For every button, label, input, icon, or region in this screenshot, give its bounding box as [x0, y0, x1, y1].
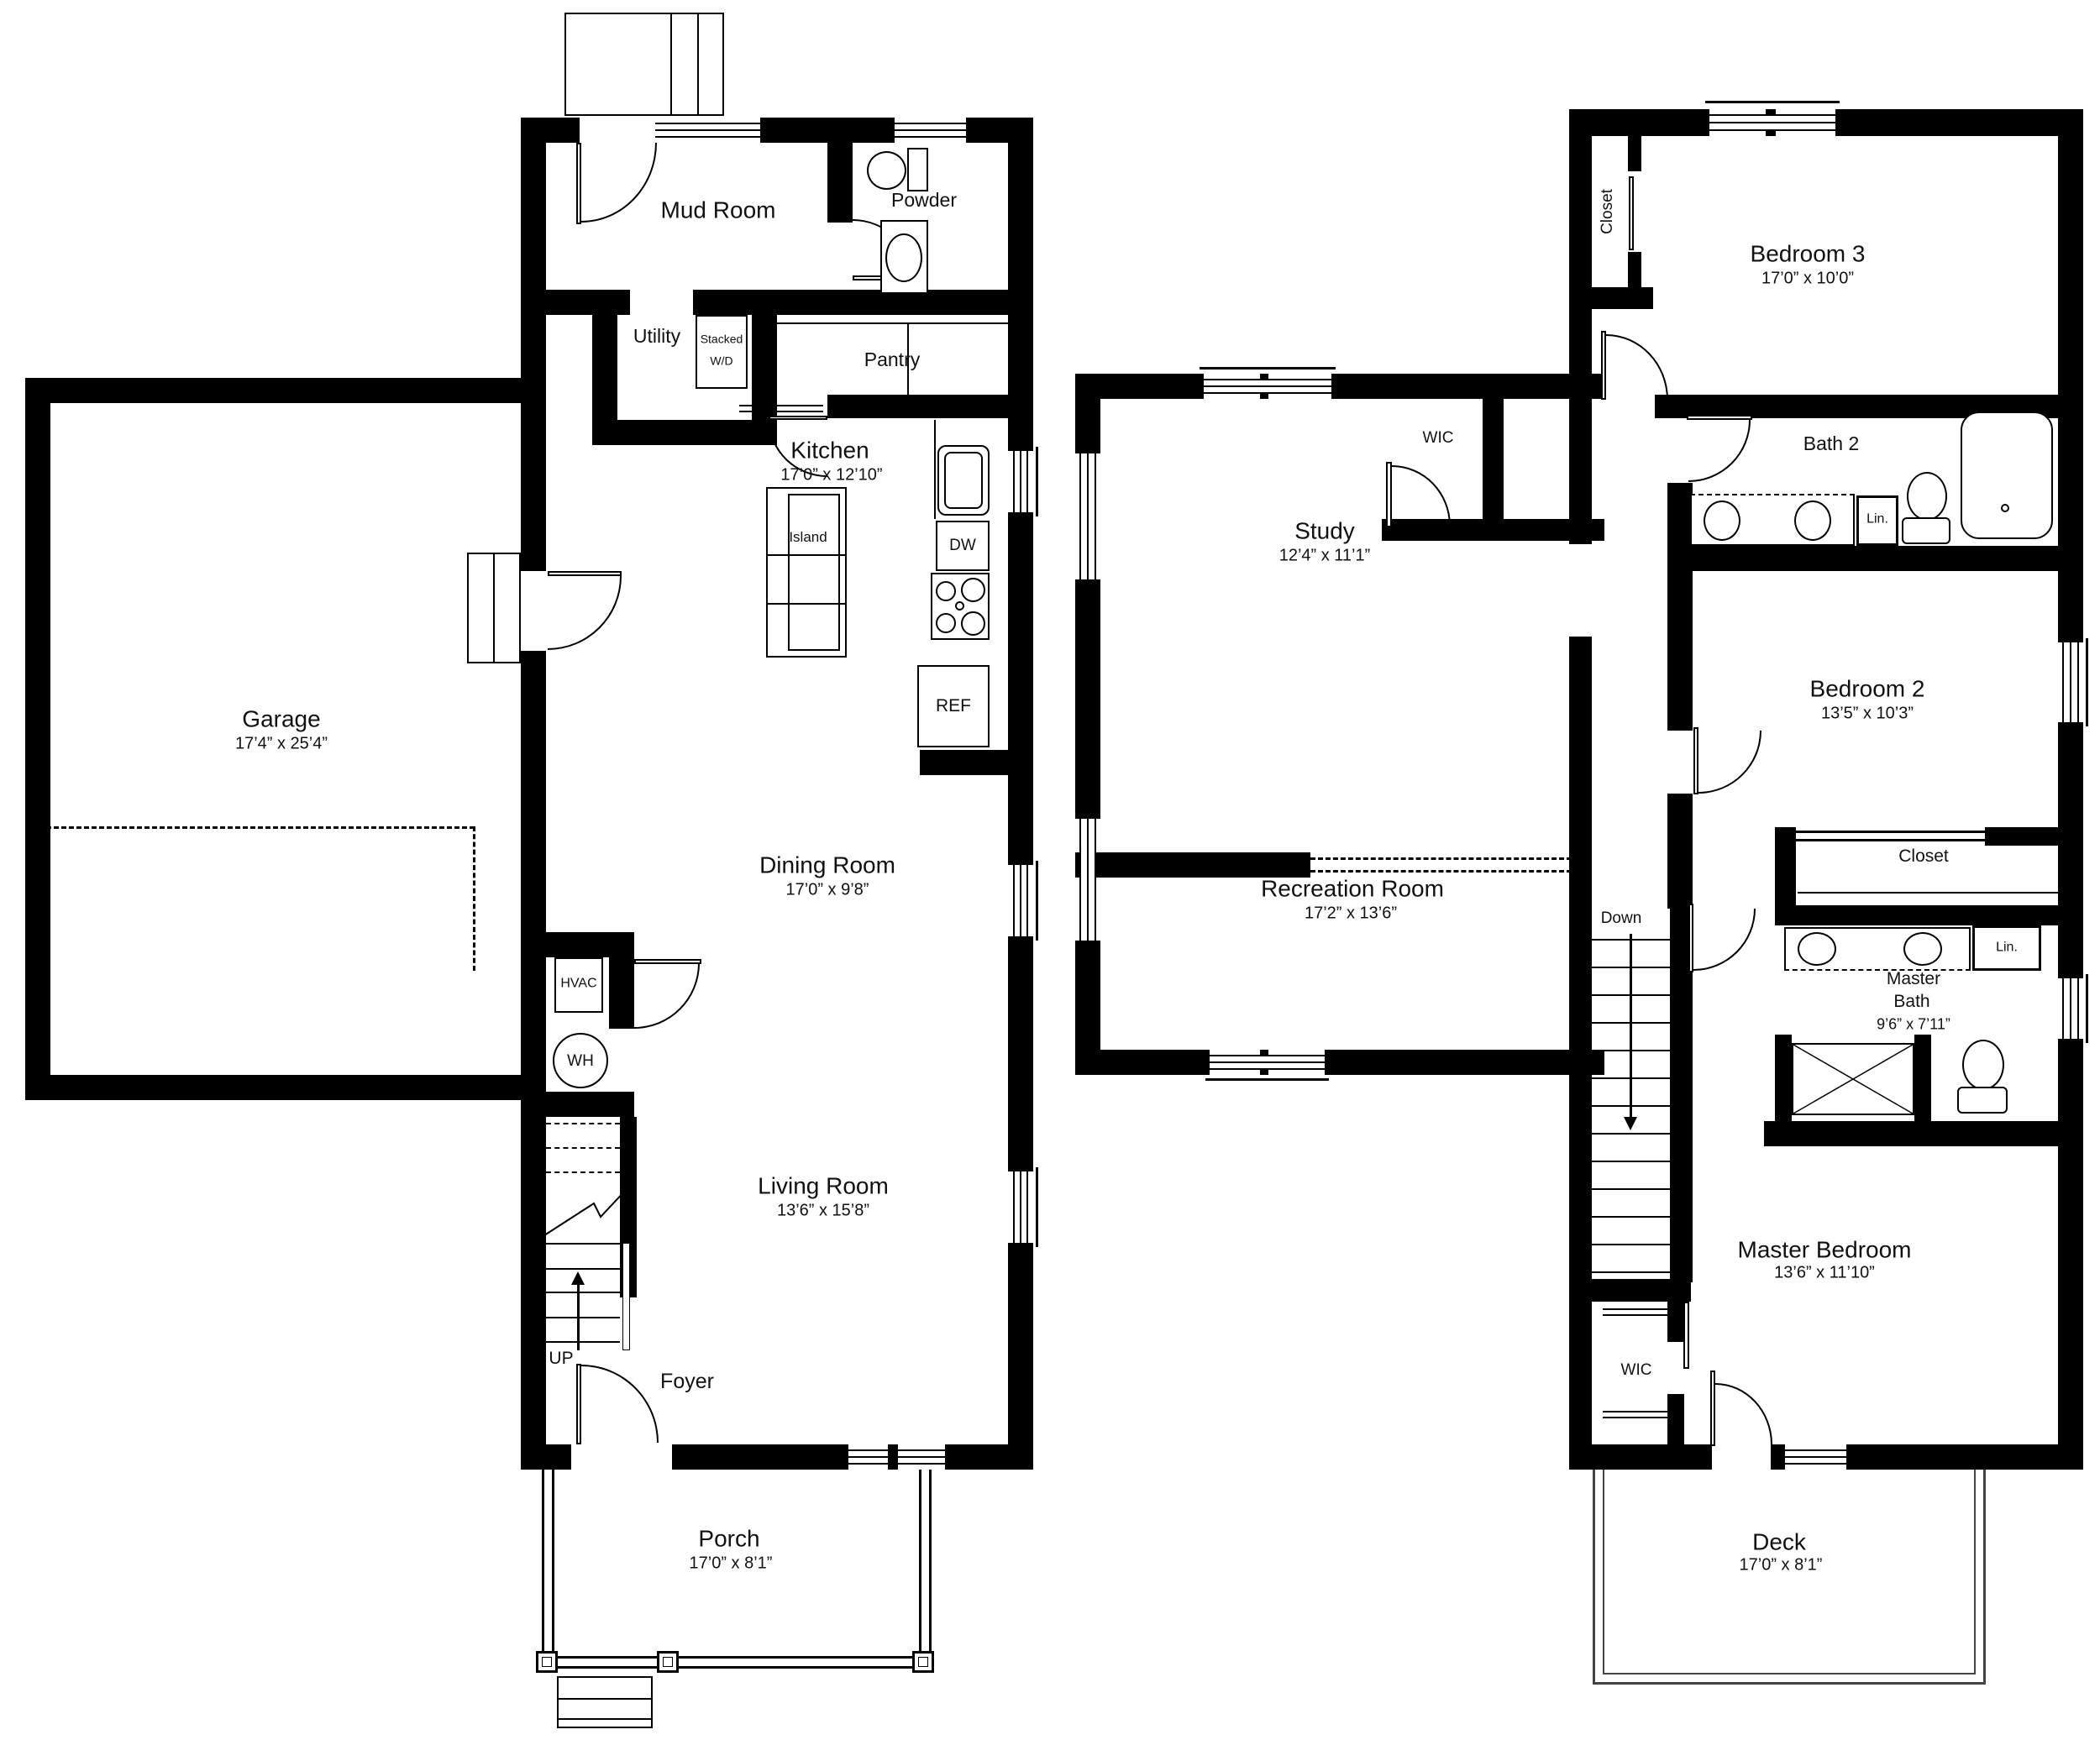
label-closet-b3: Closet — [1599, 189, 1616, 234]
wall — [1835, 109, 2083, 136]
down-arrow-line — [1630, 934, 1632, 1119]
closet-door-line — [1796, 839, 1985, 841]
wall — [2058, 1039, 2083, 1444]
stair-tread — [1592, 1133, 1670, 1135]
open-wall-dashed — [1310, 870, 1579, 873]
room-dims-deck: 17’0” x 8’1” — [1740, 1557, 1823, 1575]
room-label-master-bedroom: Master Bedroom — [1738, 1237, 1912, 1261]
wall — [1667, 794, 1693, 909]
wall — [1667, 483, 1693, 731]
sink-icon — [1794, 501, 1831, 541]
room-dims-bedroom2: 13’5” x 10’3” — [1821, 705, 1914, 723]
room-dims-bedroom3: 17’0” x 10’0” — [1761, 270, 1854, 288]
room-label-master-bath2: Bath — [1893, 993, 1929, 1011]
room-label-study: Study — [1294, 518, 1355, 542]
window — [1210, 1055, 1325, 1070]
shower-x — [1792, 1043, 1914, 1115]
wall — [1985, 827, 2083, 846]
bath2-door-swing — [1688, 420, 1751, 482]
stair-tread — [1592, 1271, 1670, 1273]
room-label-recreation: Recreation Room — [1261, 876, 1444, 900]
room-label-bedroom2: Bedroom 2 — [1810, 676, 1925, 700]
wall — [1075, 579, 1100, 819]
toilet-bowl-icon — [1962, 1040, 2004, 1090]
wall — [1331, 374, 1604, 399]
window — [1079, 819, 1096, 941]
toilet-base-icon — [1902, 517, 1950, 544]
wall — [1846, 1444, 2083, 1470]
wall — [1569, 287, 1653, 309]
window — [2062, 978, 2079, 1039]
label-down: Down — [1601, 910, 1642, 927]
room-dims-study: 12’4” x 11’1” — [1279, 548, 1371, 565]
wall — [1667, 546, 2083, 571]
window-sill — [2086, 974, 2088, 1043]
toilet-base-icon — [1957, 1087, 2008, 1114]
label-linen-bath2: Lin. — [1866, 513, 1888, 527]
window-sill — [1705, 101, 1840, 103]
toilet-bowl-icon — [1907, 472, 1947, 521]
window-sill — [1200, 367, 1336, 369]
room-dims-master-bath: 9’6” x 7’11” — [1877, 1017, 1950, 1033]
room-label-bedroom3: Bedroom 3 — [1751, 241, 1866, 265]
wic-door-swing — [1392, 465, 1451, 526]
tub-drain-icon — [2001, 504, 2009, 512]
wall — [1667, 1394, 1684, 1444]
label-linen-master: Lin. — [1996, 941, 2018, 956]
wall — [1075, 852, 1310, 878]
open-wall-dashed — [1310, 857, 1579, 860]
wall — [1628, 136, 1641, 171]
stair-tread — [1592, 1244, 1670, 1245]
label-wic-master: WIC — [1621, 1362, 1652, 1379]
closet-shelf — [1603, 1308, 1668, 1310]
bedroom2-door-swing — [1698, 731, 1761, 794]
window — [1204, 379, 1331, 394]
sink-icon — [1704, 501, 1740, 541]
room-label-bath2: Bath 2 — [1803, 433, 1860, 453]
wall — [1075, 1050, 1210, 1075]
wall — [1569, 1444, 1712, 1470]
wall — [1667, 1302, 1684, 1342]
room-label-deck: Deck — [1752, 1529, 1806, 1554]
floor-plan-canvas: Garage 17’4” x 25’4” Mud Room Powder Uti… — [0, 0, 2100, 1740]
wall — [1628, 252, 1641, 287]
wall — [1764, 1121, 2083, 1146]
window-sill — [2086, 638, 2088, 726]
room-dims-master-bedroom: 13’6” x 11’10” — [1774, 1265, 1875, 1282]
sink-icon — [1798, 932, 1836, 966]
stair-tread — [1592, 1188, 1670, 1190]
stair-tread — [1592, 1161, 1670, 1162]
closet-shelf — [1603, 1314, 1668, 1316]
label-closet-b2: Closet — [1898, 847, 1949, 866]
room-dims-recreation: 17’2” x 13’6” — [1305, 905, 1397, 923]
closet-door-line — [1796, 831, 1985, 833]
closet-shelf — [1603, 1417, 1668, 1418]
down-arrow-head — [1624, 1117, 1637, 1130]
wall — [1075, 374, 1100, 453]
closet-shelf — [1798, 892, 2083, 894]
wall — [1483, 399, 1504, 519]
window-sill — [1205, 1078, 1329, 1081]
window — [1079, 453, 1096, 579]
bathtub-icon — [1961, 411, 2053, 539]
room-label-master-bath1: Master — [1887, 970, 1940, 988]
wall — [1775, 905, 2083, 925]
window — [1785, 1449, 1846, 1465]
bedroom3-door-swing — [1606, 334, 1668, 400]
wall — [1914, 1035, 1931, 1122]
wic-master-door-leaf — [1683, 1302, 1689, 1369]
second-floor-plan: Closet Bedroom 3 17’0” x 10’0” Bath 2 Li… — [0, 0, 2100, 1740]
wall — [2058, 722, 2083, 978]
closet-b3-door-leaf — [1629, 176, 1634, 250]
closet-shelf — [1603, 1411, 1668, 1412]
window — [1709, 114, 1835, 131]
wall — [1775, 1035, 1792, 1122]
deck-door-swing — [1715, 1383, 1772, 1444]
wall — [1569, 1279, 1691, 1302]
wall — [1771, 1444, 1785, 1470]
label-wic-hall: WIC — [1423, 430, 1454, 447]
window — [2062, 642, 2079, 722]
wall — [1569, 109, 1592, 544]
wall — [1325, 1050, 1604, 1075]
stair-tread — [1592, 1216, 1670, 1218]
master-door-swing — [1693, 909, 1756, 971]
wic-door-leaf — [1386, 462, 1392, 527]
sink-icon — [1903, 932, 1942, 966]
